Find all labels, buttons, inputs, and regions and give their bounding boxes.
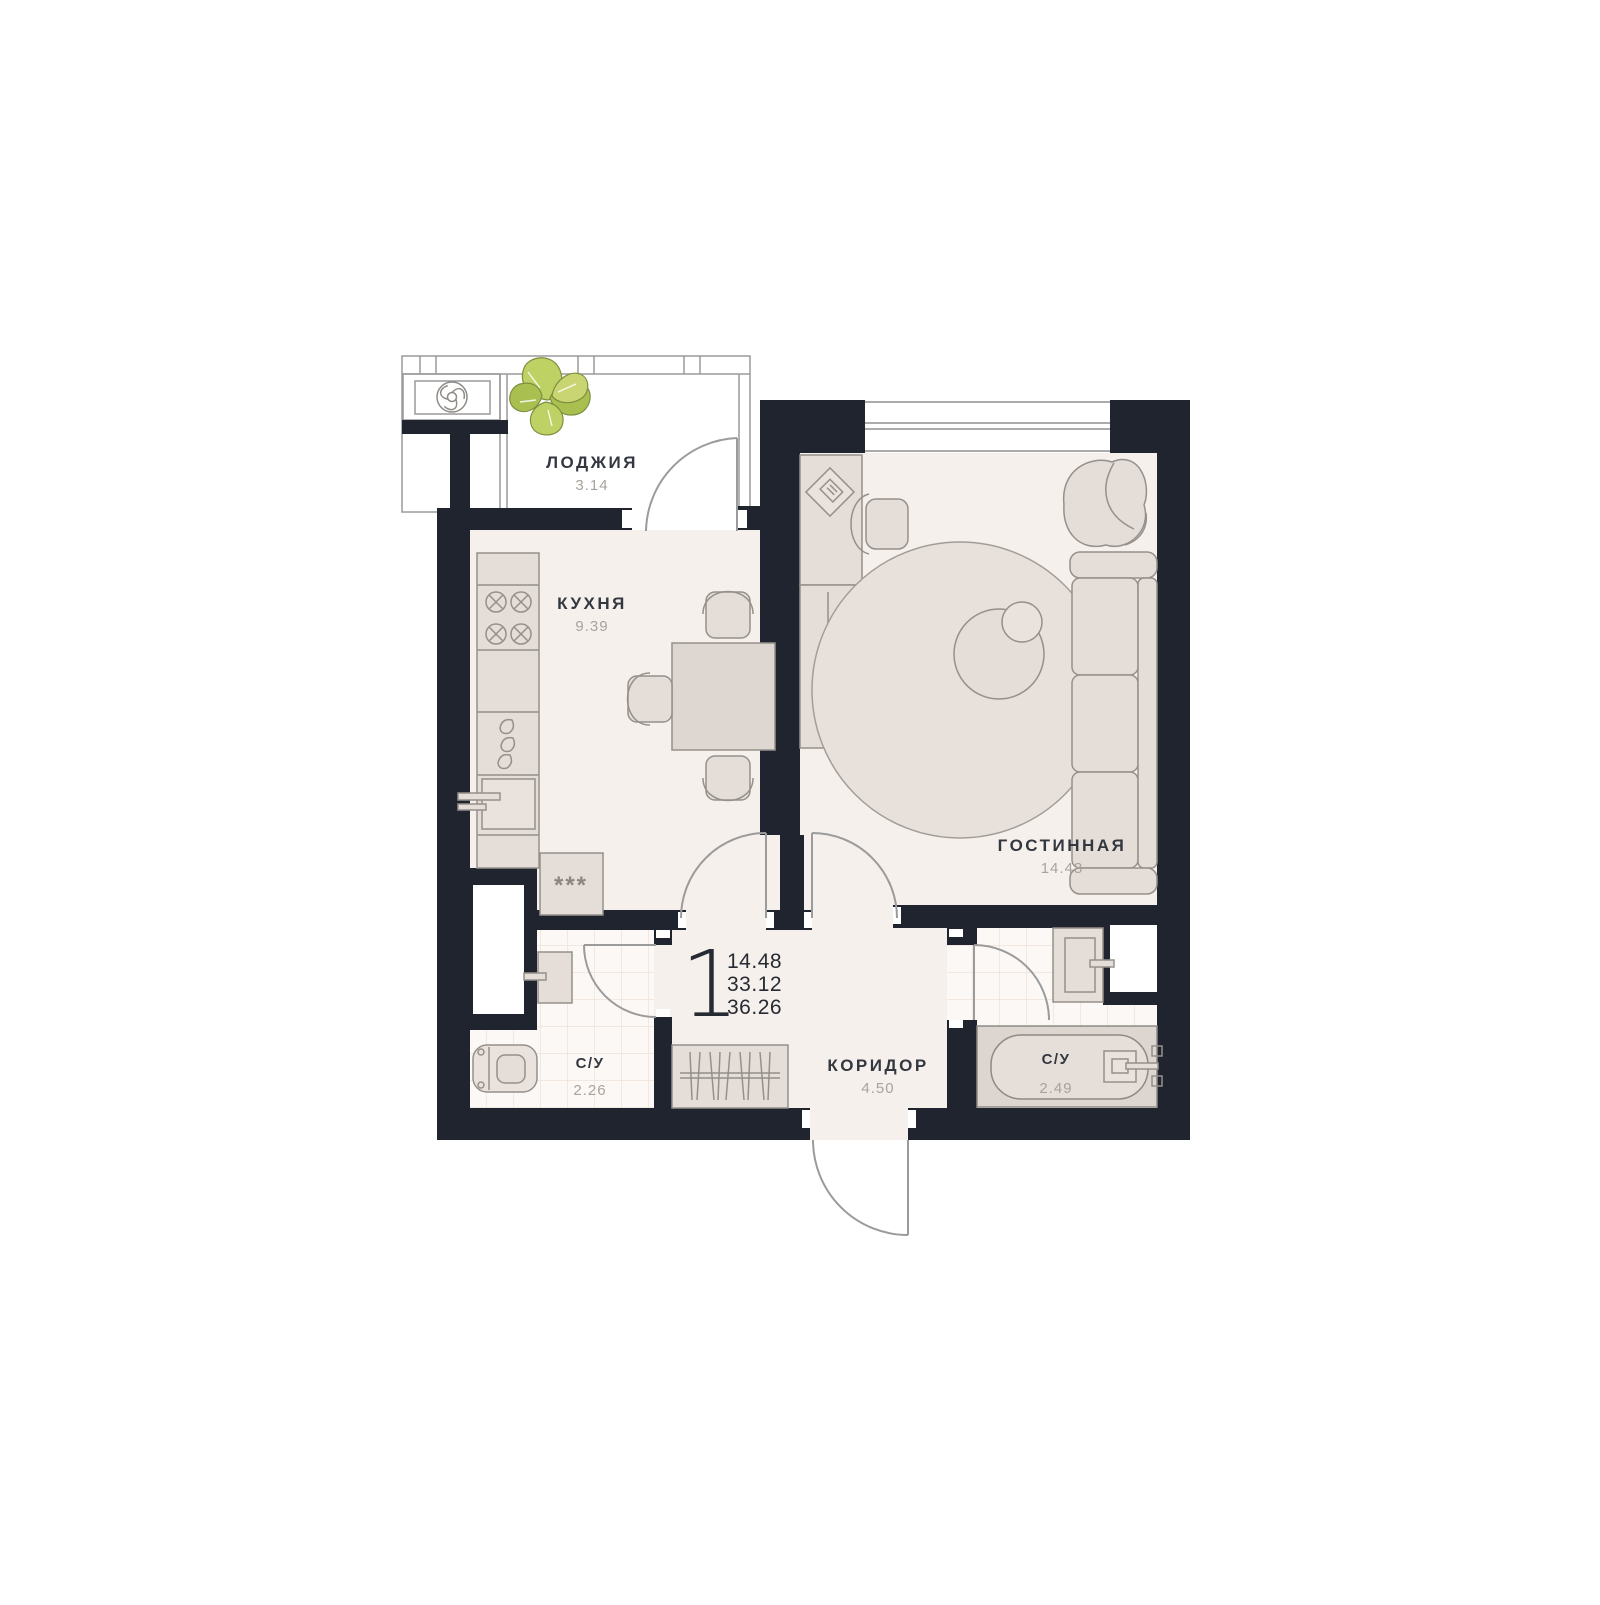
unit-area-total: 36.26 <box>727 996 782 1019</box>
floor-plan-page: ЛОДЖИЯ 3.14 <box>0 0 1600 1600</box>
kitchen-area: 9.39 <box>575 618 608 635</box>
wall-divider <box>760 400 800 835</box>
entrance-door <box>813 1140 908 1235</box>
fridge-icon: *** <box>540 853 603 915</box>
ac-unit-icon <box>403 374 500 420</box>
loggia: ЛОДЖИЯ 3.14 <box>402 356 750 512</box>
loggia-area: 3.14 <box>575 477 608 494</box>
wall-kitchen-top <box>437 508 632 530</box>
wall-right <box>1157 400 1190 1140</box>
bath2-area: 2.49 <box>1039 1080 1072 1097</box>
loggia-divider-wall <box>402 420 508 434</box>
round-rug <box>812 542 1108 838</box>
loggia-divider-wall-stem <box>450 434 470 510</box>
unit-area-no-loggia: 33.12 <box>727 973 782 996</box>
loggia-label: ЛОДЖИЯ <box>546 453 638 472</box>
fridge-label: *** <box>554 872 588 899</box>
toilet-icon <box>473 1045 537 1092</box>
bath1-label: С/У <box>576 1055 605 1072</box>
bath1-area: 2.26 <box>573 1082 606 1099</box>
coat-rack-icon <box>672 1045 788 1108</box>
living-room-window <box>865 400 1110 453</box>
armchair <box>1064 460 1147 547</box>
wall-top-left-block <box>760 400 865 453</box>
wall-left <box>437 508 470 1140</box>
wall-bottom-right <box>908 1108 1190 1140</box>
wall-bottom-left <box>437 1108 810 1140</box>
tv-stand <box>800 455 862 585</box>
dining-table <box>672 643 775 750</box>
floor-plan-svg: ЛОДЖИЯ 3.14 <box>0 0 1600 1600</box>
coffee-table-tray <box>1002 602 1042 642</box>
unit-area-living: 14.48 <box>727 950 782 973</box>
bath2-label: С/У <box>1042 1051 1071 1068</box>
kitchen-label: КУХНЯ <box>557 594 627 613</box>
corridor-area: 4.50 <box>861 1080 894 1097</box>
living-room-area: 14.48 <box>1041 860 1084 877</box>
living-room-label: ГОСТИННАЯ <box>998 836 1127 855</box>
shaft-right <box>1110 925 1157 992</box>
corridor-label: КОРИДОР <box>827 1056 928 1075</box>
wall-hall-stub <box>780 835 804 912</box>
shaft-left <box>473 885 524 1014</box>
fan-icon <box>437 382 467 412</box>
